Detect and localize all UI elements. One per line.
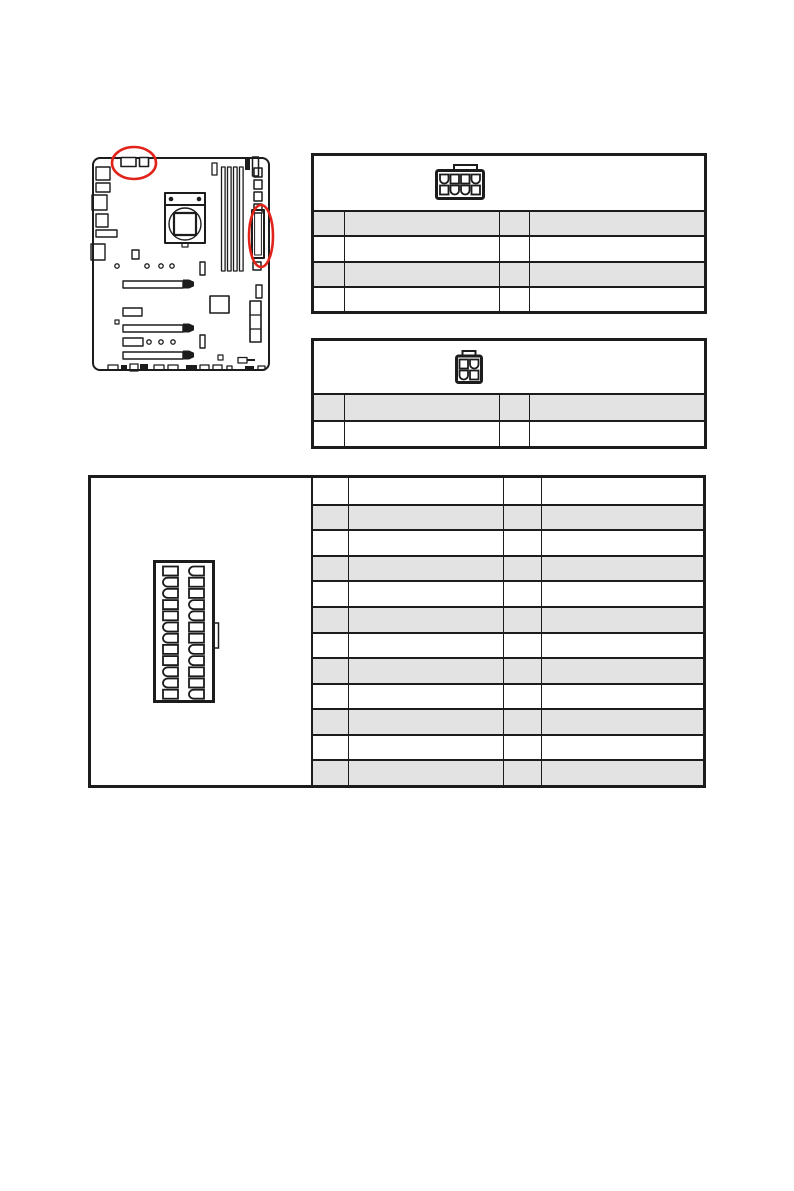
signal-name-cell bbox=[344, 420, 499, 447]
small-connector bbox=[256, 285, 262, 298]
pin-number-cell bbox=[314, 261, 344, 286]
cpu-power-4pin-pin-definition-table bbox=[311, 338, 707, 449]
pin-number-cell bbox=[313, 759, 348, 785]
rear-io-ports bbox=[91, 167, 117, 260]
signal-name-cell bbox=[348, 606, 503, 632]
signal-name-cell bbox=[348, 478, 503, 504]
signal-name-cell bbox=[348, 632, 503, 658]
connector-image-cell bbox=[314, 156, 704, 210]
pin-number-cell bbox=[313, 734, 348, 760]
signal-name-cell bbox=[541, 529, 703, 555]
pin-number-cell bbox=[503, 529, 541, 555]
signal-name-cell bbox=[529, 210, 704, 235]
cpu-socket bbox=[165, 193, 205, 247]
signal-name-cell bbox=[541, 734, 703, 760]
front-header bbox=[200, 262, 205, 275]
signal-name-cell bbox=[348, 555, 503, 581]
pin-number-cell bbox=[499, 393, 529, 420]
pin-number-cell bbox=[313, 478, 348, 504]
pin-number-cell bbox=[499, 420, 529, 447]
sata-ports bbox=[250, 301, 261, 342]
signal-name-cell bbox=[541, 478, 703, 504]
power-connector-8pin-icon bbox=[435, 164, 485, 200]
signal-name-cell bbox=[348, 683, 503, 709]
signal-name-cell bbox=[344, 235, 499, 260]
pin-number-cell bbox=[313, 708, 348, 734]
signal-name-cell bbox=[541, 606, 703, 632]
signal-name-cell bbox=[541, 580, 703, 606]
signal-name-cell bbox=[344, 286, 499, 311]
pin-number-cell bbox=[313, 504, 348, 530]
signal-name-cell bbox=[348, 580, 503, 606]
pin-number-cell bbox=[314, 235, 344, 260]
signal-name-cell bbox=[541, 555, 703, 581]
connector-image-cell bbox=[314, 341, 704, 393]
pin-number-cell bbox=[314, 210, 344, 235]
pin-number-cell bbox=[503, 734, 541, 760]
mounting-holes bbox=[115, 264, 174, 268]
signal-name-cell bbox=[541, 632, 703, 658]
pin-number-cell bbox=[313, 657, 348, 683]
pin-number-cell bbox=[499, 210, 529, 235]
signal-name-cell bbox=[348, 708, 503, 734]
signal-name-cell bbox=[541, 657, 703, 683]
pin-number-cell bbox=[314, 420, 344, 447]
signal-name-cell bbox=[344, 210, 499, 235]
pin-number-cell bbox=[503, 683, 541, 709]
signal-name-cell bbox=[348, 759, 503, 785]
signal-name-cell bbox=[348, 734, 503, 760]
pin-number-cell bbox=[503, 657, 541, 683]
motherboard-diagram bbox=[85, 140, 285, 380]
signal-name-cell bbox=[541, 759, 703, 785]
pin-number-cell bbox=[314, 286, 344, 311]
power-connector-4pin-icon bbox=[455, 350, 483, 384]
manual-page bbox=[0, 0, 794, 1191]
pin-number-cell bbox=[503, 606, 541, 632]
dimm-slots bbox=[212, 163, 243, 271]
usb-header bbox=[245, 157, 250, 170]
signal-name-cell bbox=[529, 286, 704, 311]
connector-image-cell bbox=[91, 478, 313, 785]
signal-name-cell bbox=[344, 261, 499, 286]
power-connector-24pin-icon bbox=[153, 560, 220, 703]
pin-number-cell bbox=[313, 529, 348, 555]
pin-number-cell bbox=[503, 478, 541, 504]
atx-power-24pin-pin-definition-table bbox=[88, 475, 706, 788]
chipset bbox=[210, 296, 229, 313]
pin-number-cell bbox=[503, 555, 541, 581]
signal-name-cell bbox=[529, 235, 704, 260]
cpu-power-8pin-pin-definition-table bbox=[311, 153, 707, 314]
signal-name-cell bbox=[529, 420, 704, 447]
front-header-2 bbox=[200, 335, 205, 348]
pin-number-cell bbox=[313, 580, 348, 606]
signal-name-cell bbox=[348, 657, 503, 683]
pin-number-cell bbox=[503, 759, 541, 785]
pcie-slot-2 bbox=[123, 324, 194, 333]
signal-name-cell bbox=[348, 504, 503, 530]
signal-name-cell bbox=[541, 504, 703, 530]
pcie-slot-3 bbox=[123, 351, 194, 360]
pin-number-cell bbox=[503, 504, 541, 530]
signal-name-cell bbox=[348, 529, 503, 555]
pin-number-cell bbox=[313, 632, 348, 658]
m2-slot-2 bbox=[123, 338, 175, 346]
cpu-power-connector-4pin bbox=[140, 158, 149, 167]
jumper bbox=[115, 320, 119, 324]
signal-name-cell bbox=[529, 393, 704, 420]
pin-number-cell bbox=[499, 261, 529, 286]
pin-number-cell bbox=[313, 555, 348, 581]
small-header-2 bbox=[218, 355, 223, 360]
signal-name-cell bbox=[541, 683, 703, 709]
signal-name-cell bbox=[529, 261, 704, 286]
pin-number-cell bbox=[503, 580, 541, 606]
cpu-power-connector-8pin bbox=[121, 158, 136, 167]
signal-name-cell bbox=[344, 393, 499, 420]
pcie-slot-1 bbox=[123, 280, 194, 289]
pin-number-cell bbox=[503, 708, 541, 734]
pin-number-cell bbox=[314, 393, 344, 420]
pin-number-cell bbox=[313, 606, 348, 632]
pin-number-cell bbox=[499, 235, 529, 260]
pin-number-cell bbox=[503, 632, 541, 658]
small-header bbox=[132, 250, 139, 259]
m2-slot bbox=[123, 308, 142, 316]
pin-number-cell bbox=[499, 286, 529, 311]
pin-number-cell bbox=[313, 683, 348, 709]
signal-name-cell bbox=[541, 708, 703, 734]
